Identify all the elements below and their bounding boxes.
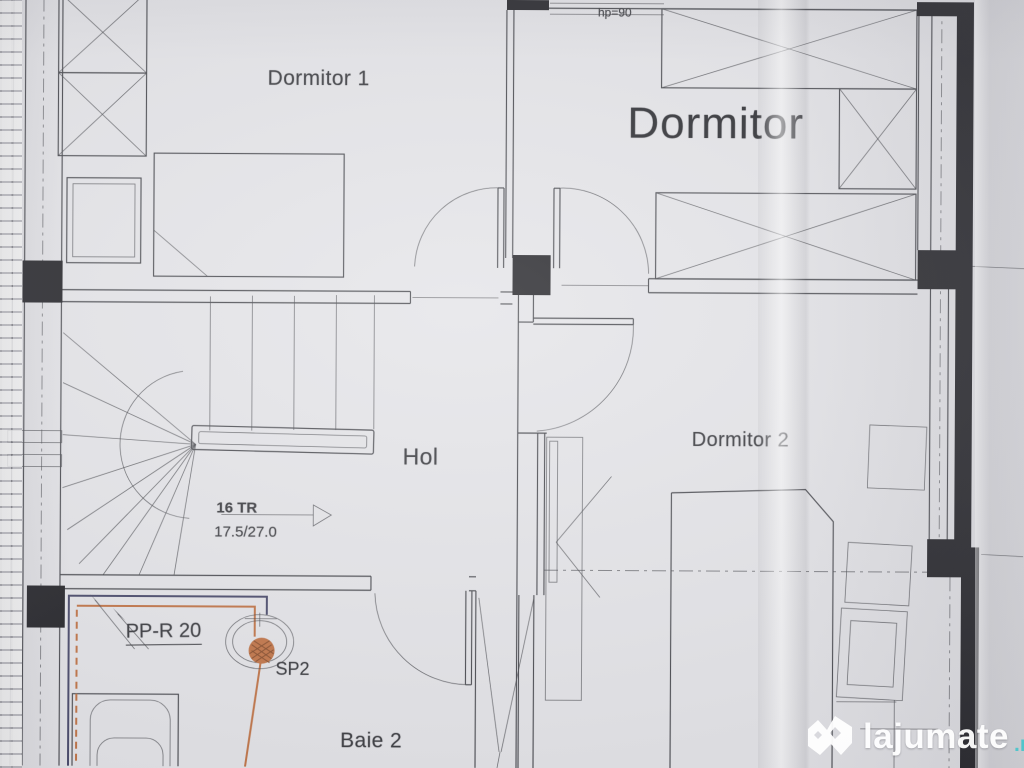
lajumate-logo-icon	[804, 714, 856, 760]
wardrobe-dormitor2	[867, 425, 926, 490]
room-label-baie2: Baie 2	[340, 729, 402, 753]
room-label-hol: Hol	[403, 443, 439, 470]
structural-columns	[20, 0, 982, 768]
door-dormitor2	[533, 318, 634, 432]
wardrobe-dormitor1	[58, 0, 147, 156]
room-label-dormitor1: Dormitor 1	[268, 67, 370, 92]
annotation-pump: SP2	[275, 659, 309, 680]
watermark: lajumate .ro	[804, 714, 1024, 760]
nightstands-dormitor2	[836, 542, 912, 701]
plan-linework	[0, 0, 1024, 768]
watermark-brand: lajumate	[863, 717, 1009, 757]
bathtub-baie2	[72, 694, 179, 768]
nightstand-dormitor1	[67, 178, 141, 263]
annotation-pipe-type: PP-R 20	[126, 620, 202, 646]
room-label-dormitor2: Dormitor 2	[692, 429, 789, 453]
annotation-stairs-dim: 17.5/27.0	[214, 523, 277, 540]
wardrobe-dormitor-top	[662, 9, 917, 89]
interior-walls	[59, 8, 962, 768]
door-dormitor	[554, 188, 649, 274]
annotation-stairs-count: 16 TR	[216, 499, 257, 516]
room-label-dormitor: Dormitor	[627, 99, 804, 150]
opening-marker	[556, 476, 612, 597]
floorplan-photo: Dormitor 1 Dormitor Hol Dormitor 2 Baie …	[0, 0, 1024, 768]
door-baie2	[374, 590, 471, 685]
bed-dormitor1	[154, 153, 345, 277]
exterior-walls	[6, 0, 1024, 768]
watermark-tld: .ro	[1014, 733, 1024, 760]
floorplan-drawing: Dormitor 1 Dormitor Hol Dormitor 2 Baie …	[0, 0, 1024, 768]
wardrobe-dormitor-right	[839, 89, 917, 189]
door-dormitor1	[415, 187, 504, 268]
annotation-parapet-height: hp=90	[598, 5, 632, 19]
wardrobe-dormitor-bottom	[656, 193, 916, 280]
